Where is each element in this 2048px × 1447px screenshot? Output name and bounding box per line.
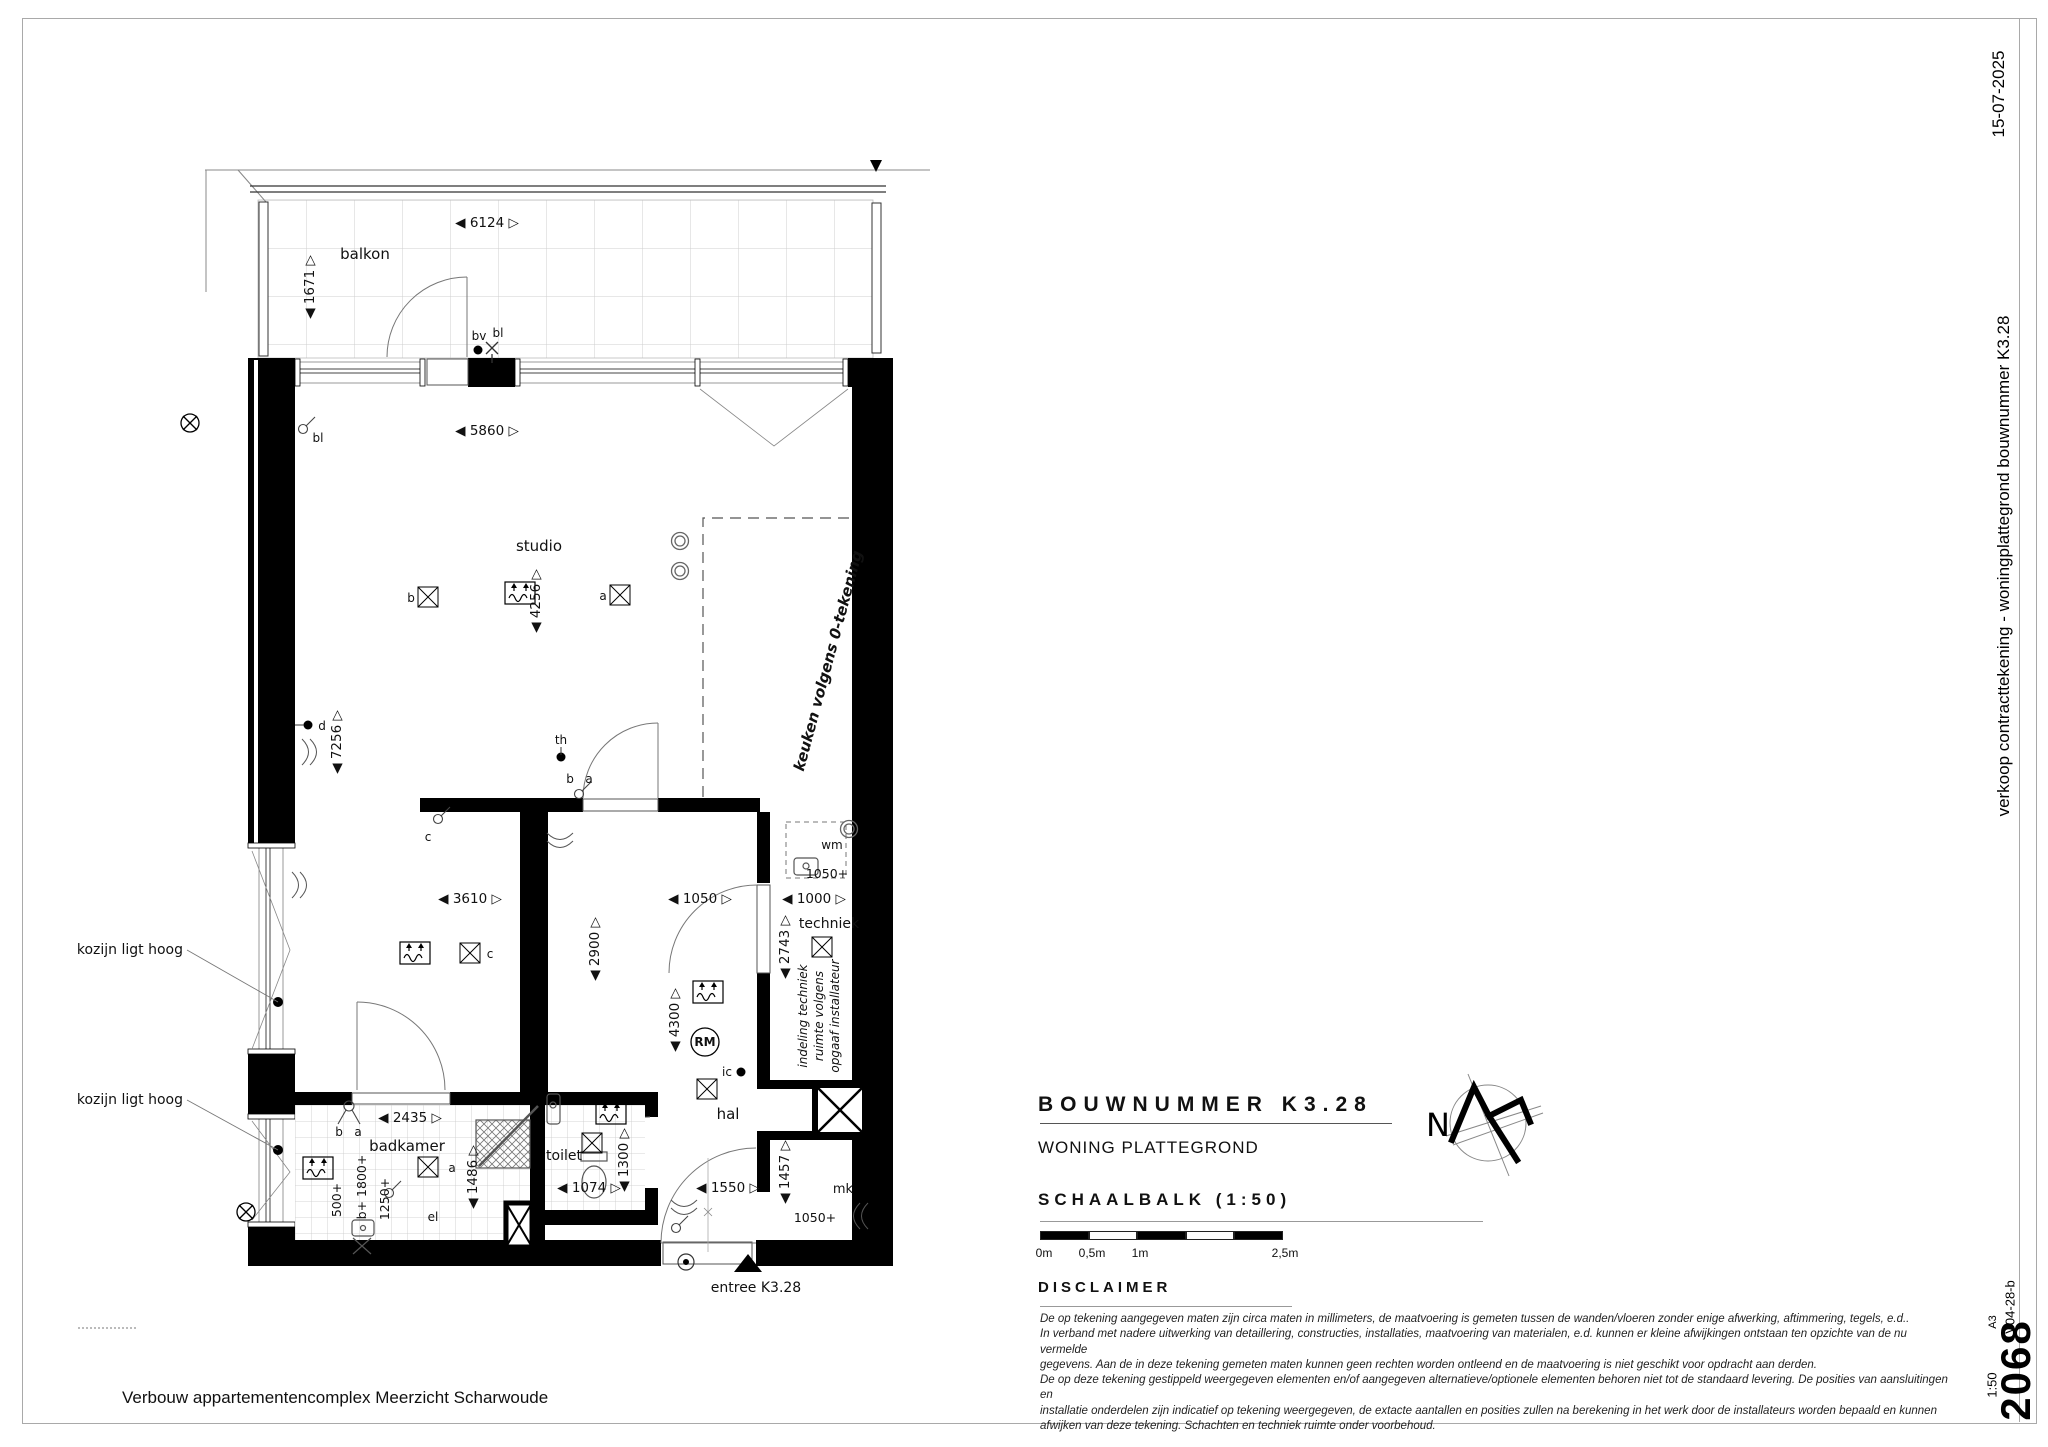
drawing-subtitle: WONING PLATTEGROND [1038, 1138, 1259, 1158]
drawing-sheet: { "sheet": { "date": "15-07-2025", "side… [0, 0, 2048, 1447]
scale-tick: 0m [1036, 1246, 1053, 1260]
rule [1040, 1123, 1392, 1124]
scale-tick: 0,5m [1079, 1246, 1106, 1260]
sheet-border [22, 18, 2037, 1424]
disclaimer-line: installatie onderdelen zijn indicatief o… [1040, 1404, 1950, 1419]
north-arrow: N [1420, 1060, 1570, 1190]
sheet-scale: 1:50 [1985, 1372, 2000, 1397]
disclaimer-text: De op tekening aangegeven maten zijn cir… [1040, 1312, 1950, 1434]
disclaimer-line: In verband met nadere uitwerking van det… [1040, 1327, 1950, 1358]
scale-tick: 2,5m [1272, 1246, 1299, 1260]
sheet-number: 2068 [1992, 1319, 2040, 1420]
sheet-date: 15-07-2025 [1989, 51, 2009, 138]
scale-seg [1089, 1231, 1138, 1240]
scale-seg [1186, 1231, 1235, 1240]
disclaimer-line: De op deze tekening gestippeld weergegev… [1040, 1373, 1950, 1404]
schaalbalk-title: SCHAALBALK (1:50) [1038, 1190, 1291, 1210]
scale-tick: 1m [1132, 1246, 1149, 1260]
scale-seg [1137, 1231, 1186, 1240]
disclaimer-line: gegevens. Aan de in deze tekening gemete… [1040, 1358, 1950, 1373]
sheet-side-title: verkoop contracttekening - woningplatteg… [1994, 316, 2014, 817]
bouwnummer-title: BOUWNUMMER K3.28 [1038, 1093, 1373, 1117]
project-title: Verbouw appartementencomplex Meerzicht S… [122, 1388, 548, 1408]
disclaimer-line: afwijken van deze tekening. Schachten en… [1040, 1419, 1950, 1434]
title-strip-divider [2019, 18, 2020, 1422]
disclaimer-title: DISCLAIMER [1038, 1279, 1171, 1296]
paper-size: A3 [1987, 1315, 1999, 1328]
rule [1040, 1306, 1292, 1307]
scale-bar [1040, 1231, 1283, 1240]
scale-seg [1040, 1231, 1089, 1240]
north-label: N [1426, 1106, 1450, 1144]
rule [1040, 1221, 1483, 1222]
disclaimer-line: De op tekening aangegeven maten zijn cir… [1040, 1312, 1950, 1327]
scale-seg [1234, 1231, 1283, 1240]
